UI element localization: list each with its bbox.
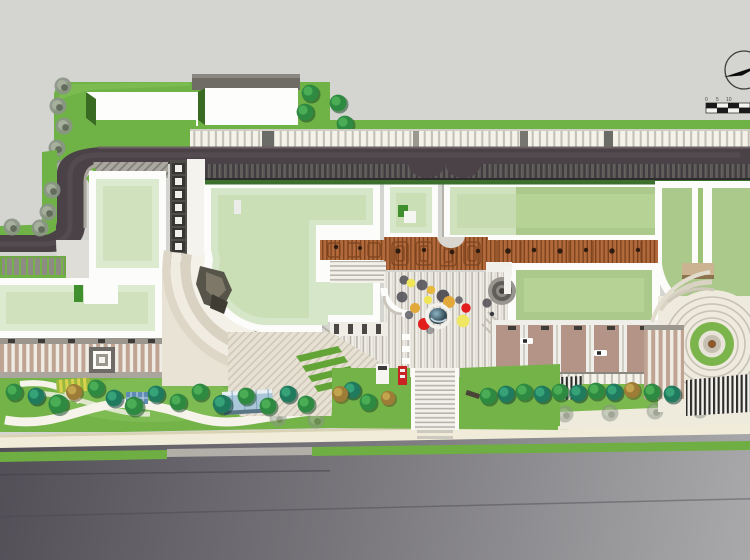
svg-text:5: 5 [716, 97, 719, 103]
svg-text:10: 10 [726, 97, 732, 103]
svg-text:0: 0 [705, 97, 708, 103]
